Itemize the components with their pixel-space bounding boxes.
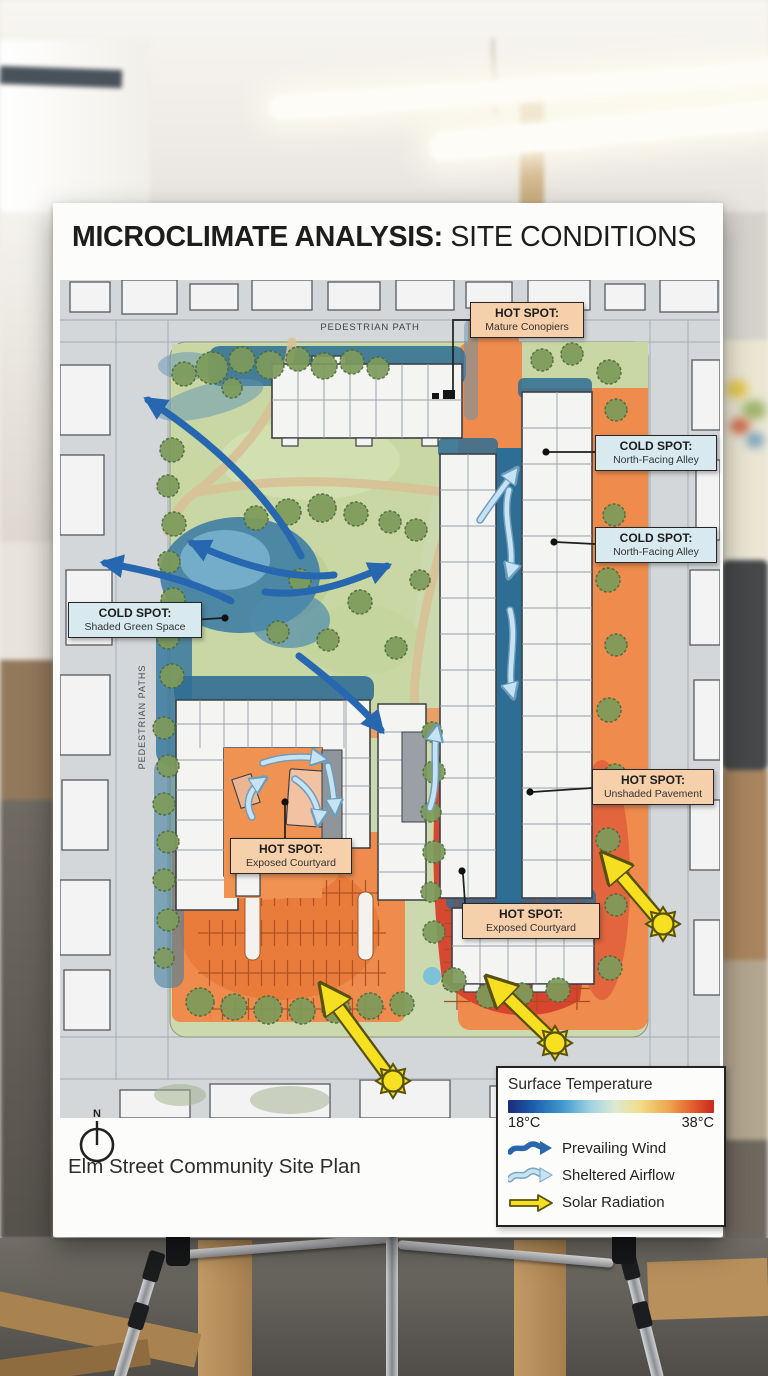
- easel-center-pole: [386, 1234, 398, 1376]
- callout-title: COLD SPOT:: [73, 606, 197, 621]
- site-plan-map: [60, 280, 720, 1118]
- wood-table: [722, 770, 768, 960]
- callout-subtitle: Unshaded Pavement: [597, 788, 709, 801]
- table-rail: [647, 1258, 768, 1320]
- temp-min: 18°C: [508, 1115, 540, 1131]
- right-background: [722, 212, 768, 1376]
- callout-subtitle: North-Facing Alley: [600, 546, 712, 559]
- callout-title: COLD SPOT:: [600, 439, 712, 454]
- callout-title: HOT SPOT:: [467, 907, 595, 922]
- callout-cold-shaded-green: COLD SPOT: Shaded Green Space: [68, 602, 202, 638]
- legend-label: Prevailing Wind: [562, 1140, 666, 1157]
- callout-title: COLD SPOT:: [600, 531, 712, 546]
- temp-max: 38°C: [682, 1115, 714, 1131]
- sun-icon: [376, 1064, 410, 1098]
- callout-title: HOT SPOT:: [475, 306, 579, 321]
- callout-subtitle: North-Facing Alley: [600, 454, 712, 467]
- temperature-scale: 18°C 38°C: [508, 1115, 714, 1131]
- left-background: [0, 212, 54, 1376]
- map-legend: Surface Temperature 18°C 38°C Prevailing…: [496, 1066, 726, 1227]
- table-leg: [198, 1240, 252, 1376]
- plan-caption: Elm Street Community Site Plan: [68, 1155, 361, 1179]
- sun-icon: [646, 907, 680, 941]
- worktable: [0, 542, 54, 660]
- callout-hot-mature-canopies: HOT SPOT: Mature Conopiers: [470, 302, 584, 338]
- poster-title: MICROCLIMATE ANALYSIS: SITE CONDITIONS: [72, 221, 696, 254]
- site-plan-svg: [60, 280, 720, 1118]
- callout-subtitle: Exposed Courtyard: [235, 857, 347, 870]
- temperature-gradient-bar: [508, 1100, 714, 1113]
- wall: [722, 212, 768, 350]
- legend-label: Sheltered Airflow: [562, 1167, 675, 1184]
- legend-label: Solar Radiation: [562, 1194, 665, 1211]
- callout-subtitle: Mature Conopiers: [475, 321, 579, 334]
- plan-blob: [746, 432, 764, 448]
- window-lower: [0, 212, 54, 542]
- callout-hot-exposed-courtyard-1: HOT SPOT: Exposed Courtyard: [230, 838, 352, 874]
- callout-hot-exposed-courtyard-2: HOT SPOT: Exposed Courtyard: [462, 903, 600, 939]
- table-papers: [722, 960, 768, 1140]
- studio-photo-scene: MICROCLIMATE ANALYSIS: SITE CONDITIONS: [0, 0, 768, 1376]
- plan-blob: [730, 418, 750, 434]
- legend-title: Surface Temperature: [508, 1076, 714, 1094]
- callout-subtitle: Shaded Green Space: [73, 621, 197, 634]
- shadow-area: [0, 800, 54, 1240]
- plan-blob: [726, 380, 748, 398]
- callout-subtitle: Exposed Courtyard: [467, 922, 595, 935]
- pinned-plan: [722, 340, 768, 560]
- legend-item-prevailing-wind: Prevailing Wind: [508, 1135, 714, 1162]
- sun-icon: [538, 1026, 572, 1060]
- wind-arrow-icon: [508, 1139, 554, 1159]
- wood-shelf: [0, 660, 54, 800]
- legend-item-sheltered-airflow: Sheltered Airflow: [508, 1162, 714, 1189]
- poster-title-bold: MICROCLIMATE ANALYSIS:: [72, 221, 443, 253]
- airflow-arrow: [510, 610, 513, 696]
- street-label-pedestrian-paths: PEDESTRIAN PATHS: [137, 650, 147, 784]
- airflow-arrow-icon: [508, 1166, 554, 1186]
- north-label: N: [93, 1108, 101, 1120]
- chair: [722, 560, 768, 770]
- poster-board: MICROCLIMATE ANALYSIS: SITE CONDITIONS: [53, 203, 723, 1237]
- callout-hot-unshaded-pavement: HOT SPOT: Unshaded Pavement: [592, 769, 714, 805]
- callout-cold-alley-lower: COLD SPOT: North-Facing Alley: [595, 527, 717, 563]
- plan-blob: [742, 400, 766, 420]
- callout-cold-alley-upper: COLD SPOT: North-Facing Alley: [595, 435, 717, 471]
- callout-title: HOT SPOT:: [235, 842, 347, 857]
- legend-item-solar-radiation: Solar Radiation: [508, 1189, 714, 1216]
- street-label-pedestrian-path: PEDESTRIAN PATH: [290, 322, 450, 333]
- solar-arrow-icon: [508, 1193, 554, 1213]
- poster-title-regular: SITE CONDITIONS: [450, 221, 696, 253]
- callout-title: HOT SPOT:: [597, 773, 709, 788]
